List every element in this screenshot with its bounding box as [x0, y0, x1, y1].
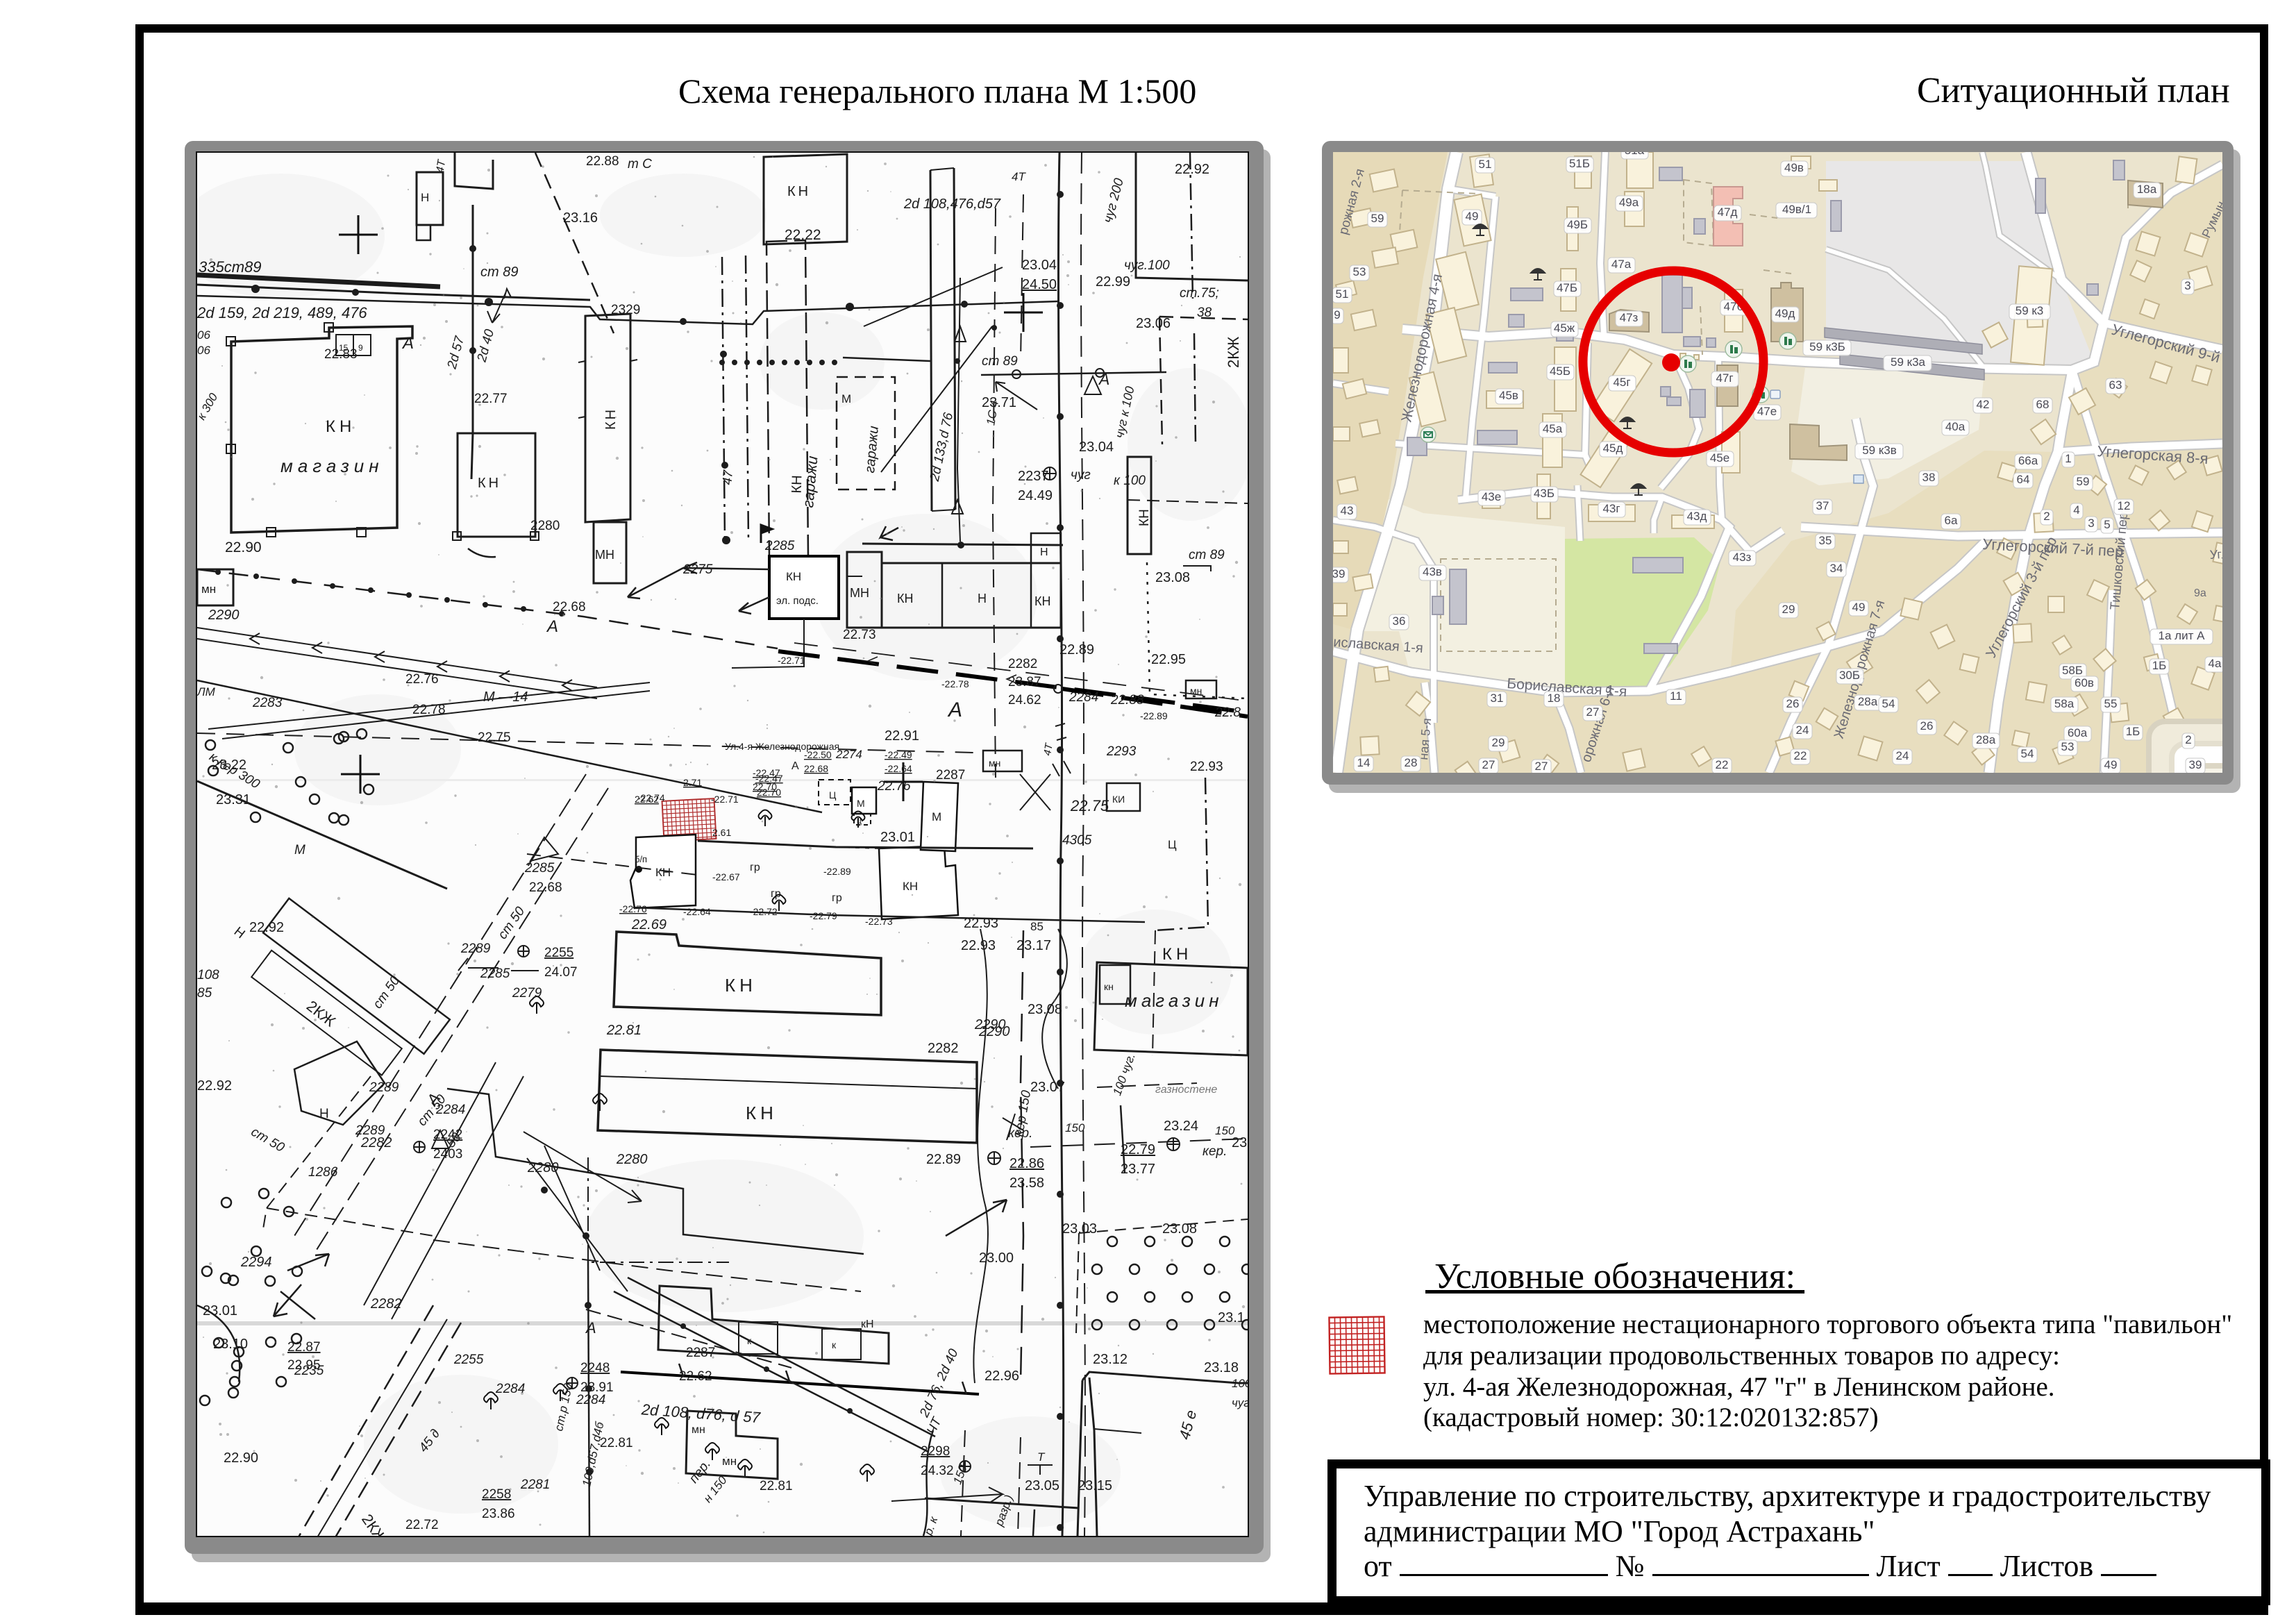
svg-text:22.88: 22.88: [1110, 693, 1144, 708]
svg-text:Н: Н: [319, 1107, 329, 1121]
svg-text:2282: 2282: [1008, 657, 1037, 671]
svg-text:2.71: 2.71: [683, 777, 702, 788]
svg-text:9: 9: [358, 343, 363, 353]
svg-text:06: 06: [197, 328, 210, 342]
svg-text:22.91: 22.91: [885, 728, 919, 744]
svg-text:23.15: 23.15: [1078, 1478, 1112, 1493]
svg-text:Н: Н: [1040, 546, 1048, 558]
svg-text:2329: 2329: [611, 303, 640, 317]
svg-text:45а: 45а: [1543, 422, 1563, 435]
svg-text:22.8: 22.8: [1214, 705, 1241, 720]
svg-text:чуг: чуг: [1232, 1396, 1248, 1409]
svg-text:100,d57,d4б: 100,d57,d4б: [580, 1420, 607, 1488]
svg-text:22.68: 22.68: [804, 763, 828, 774]
svg-text:55: 55: [2104, 697, 2118, 710]
svg-text:М: М: [857, 798, 865, 809]
svg-text:47д: 47д: [1718, 206, 1738, 219]
svg-text:22.70: 22.70: [757, 787, 781, 798]
svg-text:22.79: 22.79: [1121, 1142, 1155, 1157]
svg-text:23.00: 23.00: [979, 1250, 1014, 1266]
svg-text:43в: 43в: [1423, 565, 1442, 578]
svg-text:4Т: 4Т: [1041, 742, 1055, 757]
svg-text:2284: 2284: [435, 1103, 465, 1117]
svg-text:22.81: 22.81: [760, 1479, 793, 1493]
svg-text:-22.79: -22.79: [810, 910, 837, 921]
svg-text:КН: КН: [787, 184, 811, 199]
svg-text:гр: гр: [832, 892, 842, 904]
svg-text:2d 159, 2d 219, 489, 476: 2d 159, 2d 219, 489, 476: [197, 304, 367, 321]
svg-text:43Б: 43Б: [1534, 487, 1555, 500]
svg-text:23.03: 23.03: [1062, 1221, 1097, 1237]
svg-text:06: 06: [197, 344, 210, 357]
svg-text:пер.: пер.: [687, 1457, 714, 1486]
svg-text:43з: 43з: [1733, 551, 1752, 564]
svg-text:51: 51: [1336, 287, 1349, 301]
svg-text:1: 1: [2065, 452, 2071, 465]
svg-text:22.68: 22.68: [529, 880, 562, 895]
svg-text:11: 11: [1670, 689, 1682, 703]
svg-text:4305: 4305: [1062, 833, 1092, 848]
svg-text:-22.74: -22.74: [637, 792, 665, 803]
svg-text:30Б: 30Б: [1839, 669, 1860, 682]
svg-text:2284: 2284: [576, 1393, 605, 1407]
svg-text:34: 34: [1830, 562, 1843, 575]
svg-text:2242: 2242: [433, 1128, 462, 1142]
svg-text:КН: КН: [326, 417, 355, 436]
svg-text:2274: 2274: [835, 748, 862, 761]
svg-text:49в/1: 49в/1: [1782, 203, 1811, 216]
svg-text:45Б: 45Б: [1550, 365, 1570, 378]
svg-text:22.89: 22.89: [1059, 642, 1094, 658]
svg-text:23.04: 23.04: [1022, 258, 1057, 273]
svg-text:КН: КН: [603, 408, 619, 430]
svg-text:КН: КН: [786, 570, 801, 583]
svg-text:-22.67: -22.67: [712, 871, 740, 882]
svg-text:-22.71: -22.71: [711, 794, 739, 805]
svg-text:49: 49: [1852, 601, 1866, 614]
svg-text:4а: 4а: [2209, 657, 2222, 670]
svg-text:59 к3в: 59 к3в: [1862, 444, 1897, 457]
svg-text:15: 15: [339, 343, 349, 353]
svg-text:ст 50: ст 50: [249, 1125, 287, 1155]
svg-text:45в: 45в: [1499, 389, 1518, 402]
svg-text:2283: 2283: [252, 696, 283, 710]
svg-text:гр: гр: [771, 888, 781, 900]
svg-text:22.62: 22.62: [679, 1369, 712, 1384]
svg-text:45е: 45е: [1710, 451, 1729, 464]
svg-text:24.32: 24.32: [921, 1464, 954, 1478]
svg-text:22.81: 22.81: [606, 1023, 642, 1038]
svg-text:М: М: [932, 810, 941, 823]
svg-text:КН: КН: [1162, 945, 1192, 964]
svg-text:чуг.100: чуг.100: [1124, 258, 1170, 273]
svg-text:45д: 45д: [1603, 442, 1623, 455]
svg-text:22.92: 22.92: [1175, 162, 1209, 177]
svg-text:5: 5: [2104, 518, 2110, 531]
svg-text:12: 12: [2118, 499, 2131, 512]
svg-text:2279: 2279: [512, 986, 542, 1001]
svg-text:22.69: 22.69: [631, 917, 667, 932]
svg-text:51а: 51а: [1625, 152, 1645, 157]
svg-text:43е: 43е: [1482, 490, 1501, 503]
svg-text:КН: КН: [746, 1103, 778, 1123]
svg-text:КН: КН: [478, 476, 501, 491]
svg-text:т С: т С: [628, 157, 652, 171]
svg-text:2298: 2298: [921, 1444, 950, 1459]
svg-text:2d 40: 2d 40: [474, 328, 497, 365]
svg-text:43д: 43д: [1687, 510, 1707, 523]
svg-text:22.78: 22.78: [412, 703, 446, 717]
svg-text:КН: КН: [725, 975, 757, 996]
svg-text:2280: 2280: [530, 519, 560, 533]
svg-text:22.75: 22.75: [1070, 797, 1109, 814]
svg-text:2289: 2289: [369, 1080, 399, 1095]
svg-text:45 е: 45 е: [1175, 1408, 1200, 1441]
svg-text:А: А: [791, 760, 799, 772]
svg-text:23: 23: [1232, 1135, 1247, 1150]
svg-text:1286: 1286: [308, 1165, 338, 1180]
svg-text:2КЖ: 2КЖ: [303, 997, 340, 1030]
svg-text:кН: кН: [861, 1319, 874, 1330]
svg-text:66а: 66а: [2018, 454, 2038, 467]
svg-text:43г: 43г: [1602, 502, 1620, 515]
svg-text:4: 4: [2073, 503, 2079, 517]
svg-text:-22.72: -22.72: [750, 906, 778, 917]
svg-text:22.73: 22.73: [843, 628, 876, 642]
svg-text:МН: МН: [595, 548, 614, 562]
svg-text:22.22: 22.22: [785, 227, 821, 243]
svg-text:ЛМ: ЛМ: [197, 685, 216, 698]
svg-text:22.99: 22.99: [1096, 274, 1130, 290]
svg-text:2282: 2282: [370, 1296, 402, 1312]
svg-text:-22.64: -22.64: [683, 906, 711, 917]
svg-text:-22.76: -22.76: [619, 903, 647, 914]
svg-text:59 к3: 59 к3: [2016, 304, 2044, 317]
svg-text:22.92: 22.92: [249, 920, 284, 935]
svg-text:63: 63: [2109, 378, 2122, 392]
svg-text:2285: 2285: [764, 539, 795, 553]
svg-text:150: 150: [1065, 1121, 1085, 1135]
svg-text:22.96: 22.96: [984, 1368, 1019, 1384]
svg-text:23.08: 23.08: [1028, 1002, 1062, 1017]
svg-text:1а лит А: 1а лит А: [2159, 629, 2206, 642]
svg-text:35: 35: [1819, 534, 1832, 547]
svg-text:59 к3а: 59 к3а: [1891, 355, 1926, 369]
svg-text:ст 89: ст 89: [1189, 548, 1225, 562]
svg-text:85: 85: [197, 986, 212, 1001]
svg-text:2294: 2294: [240, 1255, 272, 1270]
svg-text:2289: 2289: [460, 941, 491, 956]
svg-text:49: 49: [2104, 758, 2118, 771]
svg-text:2290: 2290: [208, 608, 240, 623]
svg-text:9а: 9а: [2194, 587, 2206, 599]
svg-text:53: 53: [1353, 265, 1366, 278]
svg-text:24.07: 24.07: [544, 965, 578, 980]
svg-text:Ц: Ц: [1168, 838, 1177, 851]
svg-text:Т: Т: [1037, 1450, 1046, 1464]
svg-text:47з: 47з: [1620, 311, 1639, 324]
svg-text:28а: 28а: [1858, 695, 1878, 708]
svg-text:23.04: 23.04: [1079, 440, 1114, 455]
svg-text:335ст89: 335ст89: [199, 258, 262, 276]
svg-text:49в: 49в: [1784, 161, 1804, 174]
svg-text:2284: 2284: [495, 1382, 525, 1396]
svg-text:31: 31: [1491, 692, 1504, 705]
svg-text:2255: 2255: [453, 1353, 484, 1367]
svg-text:26: 26: [1786, 697, 1800, 710]
svg-text:49Б: 49Б: [1567, 218, 1588, 231]
svg-text:мн: мн: [722, 1455, 737, 1468]
svg-text:Н: Н: [421, 191, 429, 204]
svg-text:36: 36: [1393, 614, 1406, 628]
svg-text:23.18: 23.18: [1204, 1360, 1239, 1375]
svg-text:2КЖ: 2КЖ: [358, 1511, 391, 1536]
svg-text:Ц: Ц: [829, 789, 837, 801]
svg-text:2d 76, 2d 40: 2d 76, 2d 40: [917, 1346, 962, 1420]
svg-text:49д: 49д: [1775, 307, 1795, 320]
svg-text:к 100: к 100: [1114, 474, 1146, 488]
svg-text:29: 29: [1782, 603, 1795, 616]
svg-text:КН: КН: [1137, 509, 1152, 526]
svg-text:45ж: 45ж: [1554, 321, 1575, 335]
svg-text:2: 2: [2043, 510, 2050, 523]
svg-text:2282: 2282: [928, 1041, 959, 1056]
svg-text:А: А: [1098, 370, 1109, 388]
svg-text:гаражи: гаражи: [799, 455, 821, 509]
svg-text:ст 50: ст 50: [370, 973, 403, 1012]
svg-text:гр: гр: [750, 862, 760, 873]
svg-text:6а: 6а: [1945, 514, 1958, 527]
svg-text:4T: 4T: [1012, 170, 1026, 183]
svg-text:26: 26: [1920, 719, 1934, 733]
svg-text:-22.49: -22.49: [885, 749, 912, 760]
svg-text:Н: Н: [231, 924, 248, 941]
svg-text:22.72: 22.72: [405, 1518, 439, 1532]
svg-text:газностене: газностене: [1155, 1084, 1217, 1096]
svg-text:эл. подс.: эл. подс.: [776, 595, 819, 607]
svg-text:чуг 200: чуг 200: [1101, 176, 1127, 224]
svg-text:23.05: 23.05: [1025, 1478, 1059, 1493]
svg-text:47: 47: [720, 469, 736, 485]
svg-text:1Б: 1Б: [2126, 725, 2140, 738]
svg-text:47Б: 47Б: [1557, 281, 1577, 294]
svg-text:М: М: [841, 392, 851, 405]
svg-text:22.90: 22.90: [225, 539, 262, 555]
svg-text:2287: 2287: [686, 1346, 715, 1360]
svg-text:ст 89: ст 89: [480, 265, 518, 280]
svg-text:к: к: [832, 1339, 837, 1350]
svg-text:22.90: 22.90: [224, 1450, 258, 1466]
svg-text:23.01: 23.01: [880, 830, 915, 845]
svg-text:49: 49: [1466, 210, 1479, 223]
svg-text:23.31: 23.31: [216, 792, 251, 807]
svg-text:100: 100: [1232, 1377, 1248, 1390]
svg-text:18: 18: [1548, 692, 1561, 705]
svg-text:22.75: 22.75: [478, 730, 511, 745]
svg-text:КН: КН: [903, 880, 918, 893]
svg-text:22.89: 22.89: [926, 1152, 961, 1167]
svg-text:54: 54: [1882, 697, 1895, 710]
svg-text:23.71: 23.71: [982, 395, 1016, 410]
svg-text:22.92: 22.92: [197, 1078, 232, 1094]
svg-text:58а: 58а: [2054, 697, 2075, 710]
svg-text:-22.73: -22.73: [865, 916, 893, 927]
svg-text:-22.78: -22.78: [941, 678, 969, 689]
svg-text:23.77: 23.77: [1121, 1162, 1155, 1177]
svg-text:28: 28: [1405, 756, 1418, 769]
svg-text:23.12: 23.12: [1093, 1352, 1128, 1367]
svg-text:ст 89: ст 89: [982, 354, 1018, 369]
svg-text:24.62: 24.62: [1008, 693, 1041, 708]
svg-text:2403: 2403: [433, 1147, 462, 1162]
svg-text:23.07: 23.07: [1030, 1080, 1065, 1095]
svg-text:3: 3: [2184, 279, 2190, 292]
svg-text:3: 3: [2088, 517, 2094, 530]
svg-text:23.91: 23.91: [580, 1380, 614, 1395]
svg-text:1Б: 1Б: [2152, 659, 2167, 672]
svg-text:2289: 2289: [355, 1123, 385, 1138]
svg-text:59: 59: [1371, 212, 1384, 225]
svg-text:22.93: 22.93: [961, 938, 996, 953]
svg-text:2235: 2235: [294, 1364, 324, 1378]
svg-text:23.08: 23.08: [1155, 570, 1190, 585]
svg-text:37: 37: [1816, 499, 1829, 512]
svg-text:-22.89: -22.89: [1140, 710, 1168, 721]
svg-text:М —14: М —14: [483, 689, 528, 705]
svg-text:2285: 2285: [480, 966, 510, 981]
svg-text:2281: 2281: [520, 1477, 550, 1492]
svg-text:к 300: к 300: [197, 391, 221, 423]
svg-text:39: 39: [2189, 758, 2202, 771]
svg-text:23.06: 23.06: [1136, 316, 1171, 331]
svg-text:59 к3Б: 59 к3Б: [1809, 340, 1845, 353]
svg-text:КН: КН: [897, 592, 913, 605]
svg-text:22: 22: [1716, 758, 1729, 771]
svg-text:24.49: 24.49: [1018, 488, 1053, 503]
svg-text:23.10: 23.10: [213, 1337, 248, 1352]
svg-text:2.61: 2.61: [712, 827, 731, 838]
svg-text:27: 27: [1586, 705, 1600, 719]
svg-text:24: 24: [1796, 723, 1809, 737]
svg-text:51: 51: [1479, 158, 1492, 171]
svg-text:22.76: 22.76: [877, 779, 911, 794]
svg-text:н 150: н 150: [701, 1473, 730, 1505]
svg-text:38: 38: [1922, 471, 1936, 484]
svg-text:54: 54: [2021, 747, 2034, 760]
svg-text:МН: МН: [850, 586, 869, 600]
svg-text:Н: Н: [978, 592, 987, 605]
svg-text:47а: 47а: [1611, 258, 1632, 271]
svg-text:59: 59: [2077, 475, 2090, 488]
svg-text:27: 27: [1482, 758, 1495, 771]
svg-text:КН: КН: [655, 866, 671, 879]
svg-text:45г: 45г: [1613, 376, 1630, 389]
svg-text:22.87: 22.87: [287, 1340, 321, 1355]
svg-text:2: 2: [2185, 733, 2191, 746]
svg-text:А: А: [585, 1319, 596, 1337]
svg-text:24: 24: [1896, 749, 1909, 762]
svg-text:2285: 2285: [524, 861, 555, 876]
svg-text:гаражи: гаражи: [862, 426, 882, 474]
svg-text:24.50: 24.50: [1022, 277, 1057, 292]
svg-text:2d 108, d76, d 57: 2d 108, d76, d 57: [640, 1400, 761, 1426]
svg-text:2284: 2284: [1069, 690, 1098, 705]
svg-text:-22.89: -22.89: [823, 866, 851, 877]
svg-text:100 чуг.: 100 чуг.: [1110, 1051, 1138, 1097]
svg-text:23.22: 23.22: [212, 757, 246, 773]
svg-text:108: 108: [197, 968, 219, 982]
svg-text:магазин: магазин: [280, 455, 384, 476]
svg-text:М: М: [294, 843, 305, 857]
svg-text:23.16: 23.16: [563, 210, 598, 226]
svg-text:43: 43: [1341, 504, 1354, 517]
svg-text:2258: 2258: [482, 1487, 511, 1502]
svg-text:А: А: [546, 617, 558, 636]
svg-text:28а: 28а: [1976, 733, 1996, 746]
svg-text:2248: 2248: [580, 1361, 610, 1375]
svg-text:22.93: 22.93: [1190, 760, 1223, 774]
svg-text:2d 108,476,d57: 2d 108,476,d57: [903, 196, 1001, 212]
svg-text:2290: 2290: [978, 1024, 1010, 1039]
svg-text:магазин: магазин: [1125, 990, 1223, 1011]
svg-text:39: 39: [1333, 567, 1345, 580]
svg-text:22: 22: [1794, 749, 1807, 762]
svg-text:А: А: [947, 698, 962, 721]
svg-text:мн: мн: [692, 1424, 705, 1436]
svg-text:60а: 60а: [2068, 726, 2088, 739]
svg-text:47е: 47е: [1757, 405, 1777, 418]
svg-text:22.68: 22.68: [553, 600, 586, 614]
svg-text:22.95: 22.95: [1151, 652, 1186, 667]
svg-text:-22.64: -22.64: [885, 763, 912, 774]
svg-text:64: 64: [2017, 473, 2030, 486]
svg-text:23.86: 23.86: [482, 1507, 515, 1521]
svg-text:-22.50: -22.50: [804, 749, 832, 760]
svg-text:23.58: 23.58: [1009, 1175, 1044, 1191]
svg-text:б/п: б/п: [635, 854, 647, 864]
svg-text:2293: 2293: [1106, 744, 1137, 759]
svg-text:9: 9: [1334, 308, 1340, 321]
svg-text:29: 29: [1492, 736, 1505, 749]
svg-text:58Б: 58Б: [2062, 664, 2083, 677]
svg-text:мн: мн: [989, 757, 1000, 769]
svg-text:49а: 49а: [1619, 196, 1639, 209]
svg-text:кн: кн: [1104, 981, 1114, 992]
svg-text:КИ: КИ: [1112, 794, 1125, 805]
svg-text:22.81: 22.81: [600, 1436, 633, 1450]
svg-text:51Б: 51Б: [1569, 157, 1590, 170]
svg-text:2d 57: 2d 57: [444, 334, 467, 371]
svg-text:-22.71: -22.71: [778, 655, 805, 666]
svg-text:ст.75;: ст.75;: [1180, 286, 1219, 301]
svg-text:чуг: чуг: [1071, 468, 1091, 483]
svg-text:кер.: кер.: [1203, 1144, 1227, 1159]
svg-text:2255: 2255: [544, 946, 573, 960]
svg-text:47г: 47г: [1716, 371, 1733, 385]
svg-text:42: 42: [1977, 398, 1990, 411]
svg-text:4T: 4T: [434, 158, 448, 174]
svg-text:40а: 40а: [1945, 420, 1966, 433]
svg-text:23.24: 23.24: [1164, 1119, 1198, 1134]
svg-text:23.1: 23.1: [1218, 1310, 1245, 1325]
svg-text:2КЖ: 2КЖ: [1225, 336, 1242, 368]
svg-text:23.17: 23.17: [1016, 938, 1051, 953]
svg-text:14: 14: [1357, 756, 1371, 769]
svg-text:85: 85: [1030, 920, 1044, 933]
svg-text:ст.р 150: ст.р 150: [552, 1382, 575, 1432]
svg-text:68: 68: [2036, 398, 2050, 411]
svg-text:22.88: 22.88: [586, 154, 619, 169]
